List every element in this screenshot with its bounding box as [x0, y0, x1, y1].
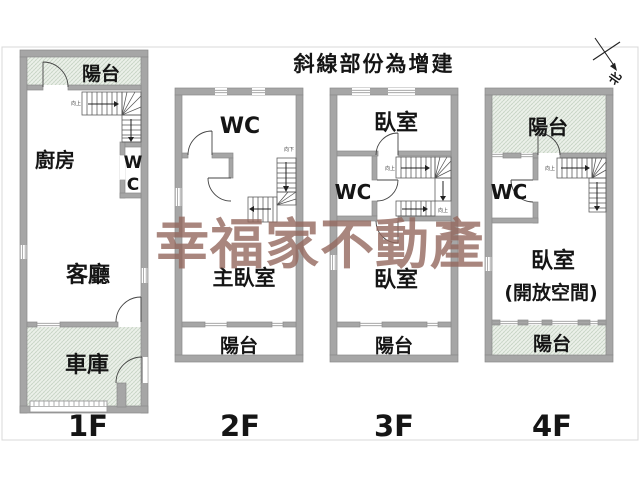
- floor1-stair-note: 向上: [71, 100, 81, 107]
- floor3-balcony-label: 陽台: [375, 334, 413, 357]
- north-arrow-icon: 北: [593, 38, 624, 87]
- floor1-balcony-label: 陽台: [82, 62, 120, 85]
- floorplan-image: 斜線部份為增建 北: [0, 0, 640, 480]
- floor1-wc-label-line1: W: [124, 153, 143, 173]
- floor4-balcony-top-label: 陽台: [528, 115, 568, 139]
- floor3-label: 3F: [374, 409, 414, 443]
- floor4-bedroom-note: (開放空間): [504, 281, 597, 304]
- hatch-legend-title: 斜線部份為增建: [293, 52, 455, 76]
- floor1-wc-label-line2: C: [127, 175, 139, 195]
- floor4-plan: 向上 陽台 WC 臥室 (開放空間) 陽台 4F: [485, 88, 613, 443]
- floor1-label: 1F: [68, 409, 108, 443]
- floor1-living-label: 客廳: [66, 262, 110, 288]
- floor4-label: 4F: [532, 409, 572, 443]
- floor4-bedroom-label: 臥室: [531, 248, 575, 274]
- floor3-bedroom-top-label: 臥室: [374, 110, 418, 136]
- floorplan-svg: 斜線部份為增建 北: [0, 0, 640, 480]
- floor2-balcony-label: 陽台: [220, 334, 258, 357]
- watermark-text: 幸福家不動產: [155, 213, 485, 276]
- floor4-wc-label: WC: [491, 180, 528, 204]
- floor1-kitchen-label: 廚房: [35, 148, 75, 172]
- floor2-wc-label: WC: [220, 114, 260, 139]
- floor2-stair-note: 向下: [284, 146, 294, 153]
- floor3-stair-note-upper: 向上: [385, 165, 395, 172]
- floor4-stair-note: 向上: [545, 165, 555, 172]
- floor4-balcony-bottom-label: 陽台: [533, 332, 571, 355]
- floor3-wc-label: WC: [335, 180, 372, 204]
- north-label: 北: [605, 69, 624, 87]
- floor2-label: 2F: [220, 409, 260, 443]
- floor1-plan: 向上 陽台 廚房 W C 客廳 車庫 1F: [20, 50, 148, 443]
- floor1-garage-label: 車庫: [65, 352, 109, 378]
